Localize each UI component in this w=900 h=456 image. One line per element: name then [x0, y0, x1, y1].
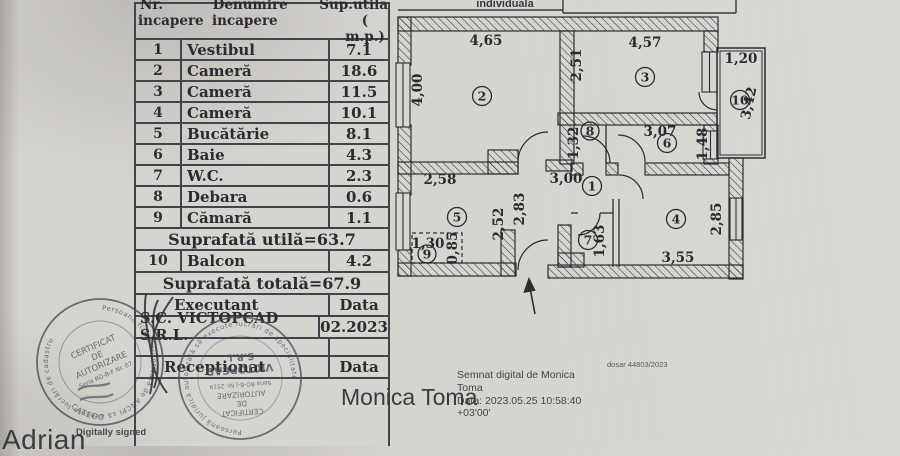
balcon-row: 10 Balcon 4.2 — [136, 251, 388, 273]
room-number: 9 — [418, 245, 436, 263]
svg-text:7: 7 — [584, 233, 593, 248]
room-number: 6 — [658, 134, 677, 153]
dim-label: 0,85 — [445, 232, 461, 265]
signature-monica-details: Semnat digital de Monica Toma Data: 2023… — [457, 369, 581, 420]
table-row: 7 W.C. 2.3 — [136, 166, 388, 187]
table-row: 3 Cameră 11.5 — [136, 82, 388, 103]
room-number: 10 — [731, 91, 750, 110]
svg-text:1: 1 — [588, 179, 597, 194]
row-area: 0.6 — [330, 188, 388, 206]
dim-label: 2,58 — [424, 172, 457, 188]
dim-label: 4,65 — [470, 33, 503, 49]
signature-adrian-note: Digitally signed — [76, 427, 146, 438]
row-name: Cameră — [182, 103, 330, 122]
table-row: 6 Baie 4.3 — [136, 145, 388, 166]
window-symbols — [396, 52, 742, 250]
stamp-arc-text: CATEGO — [70, 402, 106, 422]
room-number: 1 — [583, 177, 602, 196]
row-area: 4.2 — [330, 252, 388, 270]
signature-detail-line: +03'00' — [457, 407, 581, 420]
table-header: Nr. Denumire Sup.utila incapere incapere… — [136, 4, 388, 40]
room-number: 5 — [448, 208, 467, 227]
pantry-dashed-outline — [412, 233, 462, 263]
svg-text:8: 8 — [586, 124, 595, 139]
row-name: Baie — [182, 145, 330, 164]
room-number: 8 — [581, 122, 599, 140]
dosar-note: dosar 44803/2023 — [607, 360, 667, 369]
header-nr: Nr. — [136, 0, 181, 13]
row-area: 2.3 — [330, 167, 388, 185]
executant-company: S.C. VICTOPCAD S.R.L. — [136, 317, 320, 337]
stamp-line: DE — [90, 350, 105, 364]
dim-label: 2,52 — [491, 208, 507, 241]
dim-label: 4,00 — [410, 74, 426, 107]
dim-label: 3,55 — [662, 250, 695, 266]
executant-data-label: Data — [330, 296, 388, 314]
stamp-handwriting — [78, 383, 113, 400]
room-number: 4 — [667, 210, 686, 229]
total-row: Suprafată totală=67.9 — [136, 273, 388, 295]
row-nr: 9 — [136, 208, 182, 227]
row-name: Cameră — [182, 82, 330, 101]
row-nr: 5 — [136, 124, 182, 143]
executant-date: 02.2023 — [320, 318, 388, 336]
partial-header-label: individuala — [476, 0, 534, 10]
svg-text:10: 10 — [731, 93, 749, 108]
dimension-labels: 4,65 4,00 4,57 2,51 1,20 3,42 1,32 3,07 … — [410, 33, 760, 266]
row-nr: 2 — [136, 61, 182, 80]
scanned-cadastral-sheet: { "doc": { "top_partial_label": "individ… — [0, 0, 900, 446]
row-nr: 4 — [136, 103, 182, 122]
dim-label: 4,57 — [629, 35, 662, 51]
row-nr: 3 — [136, 82, 182, 101]
svg-text:2: 2 — [478, 89, 487, 104]
empty-row — [136, 339, 388, 357]
dim-label: 2,51 — [569, 49, 585, 82]
table-row: 1 Vestibul 7.1 — [136, 40, 388, 61]
door-arcs — [518, 92, 717, 270]
row-area: 4.3 — [330, 146, 388, 164]
signature-detail-line: Data: 2023.05.25 10:58:40 — [457, 395, 581, 408]
signature-adrian: Adrian — [2, 424, 86, 456]
stamp-line: CERTIFICAT — [70, 333, 119, 362]
row-name: Debara — [182, 187, 330, 206]
receptionat-row: Recepționat Data — [136, 357, 388, 379]
table-row: 2 Cameră 18.6 — [136, 61, 388, 82]
room-number: 3 — [636, 68, 655, 87]
row-name: Bucătărie — [182, 124, 330, 143]
svg-text:CATEGO: CATEGO — [70, 402, 106, 422]
table-row: 8 Debara 0.6 — [136, 187, 388, 208]
dim-label: 1,32 — [566, 127, 582, 160]
row-nr: 1 — [136, 40, 182, 59]
row-name: W.C. — [182, 166, 330, 185]
receptionat-data-label: Data — [330, 358, 388, 376]
room-number: 2 — [473, 87, 492, 106]
table-row: 9 Cămară 1.1 — [136, 208, 388, 229]
svg-text:9: 9 — [423, 247, 432, 262]
dim-label: 2,83 — [512, 193, 528, 226]
row-nr: 6 — [136, 145, 182, 164]
dim-label: 1,30 — [412, 236, 445, 252]
row-area: 18.6 — [330, 62, 388, 80]
svg-text:6: 6 — [663, 136, 672, 151]
row-area: 11.5 — [330, 83, 388, 101]
entrance-arrow — [525, 279, 536, 314]
dim-label: 1,63 — [592, 225, 608, 258]
dim-label: 3,42 — [738, 85, 760, 120]
room-number: 7 — [579, 231, 598, 250]
row-name: Cămară — [182, 208, 330, 227]
plan-walls — [398, 17, 743, 279]
svg-text:4: 4 — [672, 212, 681, 227]
stamp-line: Seria RO-B-F Nr. 07 — [78, 360, 134, 390]
room-table: Nr. Denumire Sup.utila incapere incapere… — [134, 2, 390, 446]
table-row: 4 Cameră 10.1 — [136, 103, 388, 124]
row-name: Cameră — [182, 61, 330, 80]
row-nr: 10 — [136, 251, 182, 271]
signature-detail-line: Semnat digital de Monica — [457, 369, 581, 382]
receptionat-label: Recepționat — [136, 357, 330, 377]
svg-text:5: 5 — [453, 210, 462, 225]
dim-label: 3,07 — [644, 124, 677, 140]
plan-partial-header — [398, 0, 736, 13]
subtotal-row: Suprafată utilă=63.7 — [136, 229, 388, 251]
dim-label: 2,85 — [709, 203, 725, 236]
plan-thin-lines — [571, 48, 765, 267]
header-sup: Sup.utila — [319, 0, 388, 13]
dim-label: 1,48 — [695, 128, 711, 161]
dim-label: 3,00 — [550, 171, 583, 187]
row-area: 7.1 — [330, 41, 388, 59]
row-nr: 7 — [136, 166, 182, 185]
stamp-line: AUTORIZARE — [74, 350, 129, 382]
row-area: 10.1 — [330, 104, 388, 122]
table-row: 5 Bucătărie 8.1 — [136, 124, 388, 145]
row-name: Balcon — [182, 251, 330, 271]
row-area: 1.1 — [330, 209, 388, 227]
svg-text:3: 3 — [641, 70, 650, 85]
executant-value-row: S.C. VICTOPCAD S.R.L. 02.2023 — [136, 317, 388, 339]
dim-label: 1,20 — [725, 51, 758, 67]
signature-detail-line: Toma — [457, 382, 581, 395]
row-name: Vestibul — [182, 40, 330, 59]
room-numbers: 1 2 3 4 5 6 7 8 9 10 — [418, 68, 750, 264]
row-nr: 8 — [136, 187, 182, 206]
row-area: 8.1 — [330, 125, 388, 143]
header-denumire: Denumire — [181, 0, 319, 13]
